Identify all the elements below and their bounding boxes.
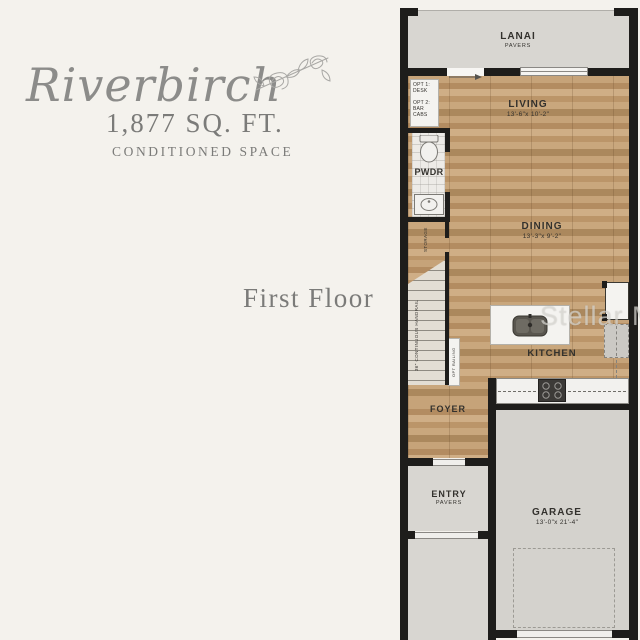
walkway-floor <box>408 539 488 640</box>
pwdr-top-wall <box>408 128 450 133</box>
entry-label-group: ENTRY PAVERS <box>419 489 479 506</box>
living-label-group: LIVING 13'-6"x 10'-2" <box>468 99 588 118</box>
entry-label: ENTRY <box>419 489 479 499</box>
pwdr-label: PWDR <box>410 167 448 177</box>
garage-door <box>517 630 612 638</box>
stair-wall-lower <box>445 252 449 385</box>
lanai-door-opening <box>447 68 484 76</box>
kitchen-label: KITCHEN <box>492 348 612 359</box>
storage-label: STORAGE <box>423 222 428 258</box>
floral-illustration <box>252 48 332 106</box>
front-door-step <box>433 459 465 466</box>
lanai-label-group: LANAI PAVERS <box>458 31 578 49</box>
opt-desk-note: OPT 1: DESK <box>413 82 437 94</box>
garage-door-clearance <box>513 548 615 628</box>
entry-surface: PAVERS <box>419 500 479 506</box>
lanai-screen-line <box>418 10 614 11</box>
living-dims: 13'-6"x 10'-2" <box>468 111 588 118</box>
sink-vanity-icon <box>414 194 444 215</box>
entry-step-stub-right <box>478 531 488 539</box>
door-direction-arrow <box>447 73 484 81</box>
lanai-top-left-stub <box>400 8 418 16</box>
front-door-wall-right <box>465 458 488 466</box>
living-label: LIVING <box>468 99 588 110</box>
handrail-note: 36" CONTINUOUS HANDRAIL <box>414 290 419 380</box>
lanai-surface: PAVERS <box>458 43 578 49</box>
lanai-window <box>520 67 588 76</box>
lanai-living-wall <box>400 68 638 76</box>
pwdr-right-wall-upper <box>445 128 450 152</box>
garage-left-wall <box>488 378 496 640</box>
toilet-icon <box>417 135 441 163</box>
pwdr-right-wall-lower <box>445 192 450 222</box>
mls-watermark: Stellar MLS <box>540 301 640 332</box>
conditioned-space-label: CONDITIONED SPACE <box>112 144 293 160</box>
range-icon <box>538 379 566 402</box>
plan-name: Riverbirch <box>26 58 282 112</box>
railing-note: OPT RAILING <box>451 342 456 382</box>
pantry-jamb-top <box>602 281 607 288</box>
garage-label: GARAGE <box>497 507 617 518</box>
dining-label: DINING <box>482 221 602 232</box>
garage-dims: 13'-0"x 21'-4" <box>497 519 617 526</box>
pwdr-bottom-wall <box>408 217 450 222</box>
lanai-top-right-stub <box>614 8 638 16</box>
front-door-wall-left <box>400 458 433 466</box>
floor-title: First Floor <box>243 283 374 314</box>
window-mullion <box>521 71 587 72</box>
left-exterior-wall <box>400 8 408 640</box>
floorplan-sheet: Riverbirch 1,877 SQ. FT. CONDITIONED SPA… <box>0 0 640 640</box>
dining-label-group: DINING 13'-3"x 9'-2" <box>482 221 602 240</box>
right-counter-dash <box>616 360 617 378</box>
garage-label-group: GARAGE 13'-0"x 21'-4" <box>497 507 617 526</box>
dining-dims: 13'-3"x 9'-2" <box>482 233 602 240</box>
stair-wall-upper <box>445 222 449 238</box>
lanai-label: LANAI <box>458 31 578 42</box>
foyer-label: FOYER <box>418 404 478 414</box>
entry-step <box>415 532 478 539</box>
opt-bar-note: OPT 2: BAR CABS <box>413 100 437 118</box>
square-footage: 1,877 SQ. FT. <box>106 108 284 139</box>
entry-step-stub-left <box>400 531 415 539</box>
